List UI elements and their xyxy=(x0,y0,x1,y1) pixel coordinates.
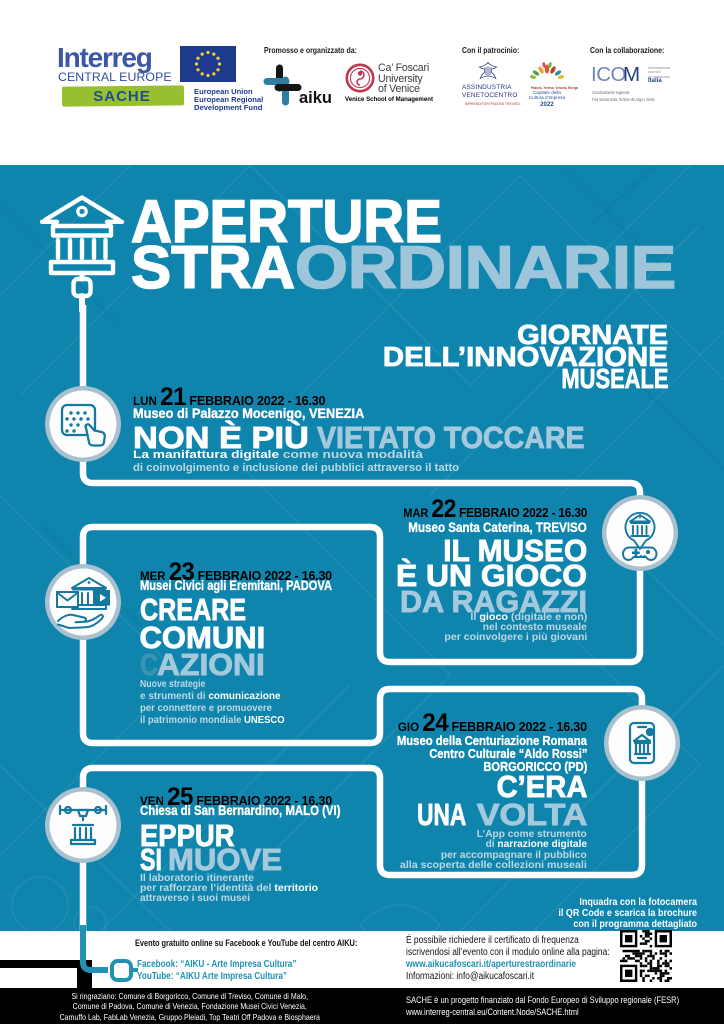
svg-text:aiku: aiku xyxy=(299,89,332,107)
svg-text:1: 1 xyxy=(649,730,652,736)
